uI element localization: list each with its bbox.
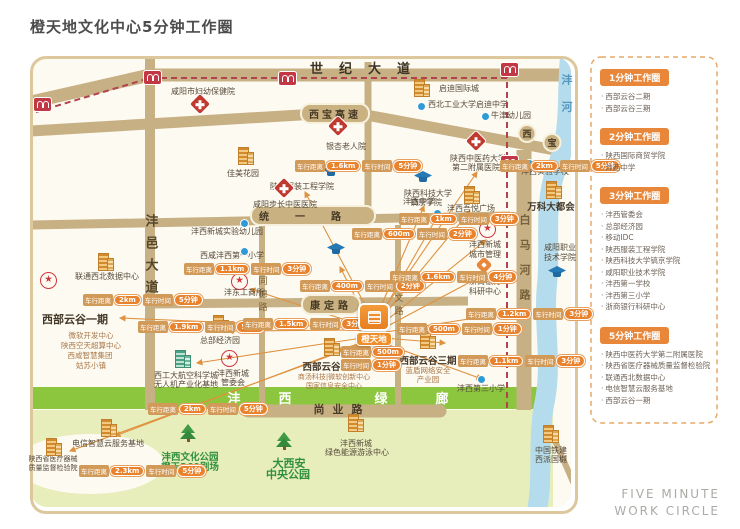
legend-panel: 1分钟工作圈西部云谷二期西部云谷三期2分钟工作圈陕西国际商贸学院沣西中学3分钟工…	[600, 66, 722, 417]
university-cap-icon	[548, 266, 566, 279]
map-label: 联通西北数据中心	[75, 271, 139, 282]
map-label: 沣邑大道	[141, 214, 160, 302]
building-icon	[346, 414, 363, 430]
map-label: 西派国樾	[535, 454, 567, 465]
badge-value: 4分钟	[488, 271, 517, 283]
distance-time-badge: 车行距离1.2km车行时间3分钟	[466, 308, 593, 320]
legend-section-title: 2分钟工作圈	[600, 128, 669, 145]
badge-row: 车行距离500m	[397, 323, 460, 335]
legend-section-title: 5分钟工作圈	[600, 327, 669, 344]
badge-value: 1.5km	[274, 319, 308, 329]
map-label: 西部云谷一期	[42, 311, 108, 327]
map-label: 国家信息安全中心	[306, 381, 362, 391]
government-star-icon: ★	[231, 273, 248, 290]
metro-station-icon	[278, 71, 297, 86]
badge-value: 2km	[114, 295, 141, 305]
badge-key: 车行距离	[295, 160, 325, 172]
badge-key: 车行时间	[525, 355, 555, 367]
badge-value: 3分钟	[282, 263, 311, 275]
badge-key: 车行距离	[83, 294, 113, 306]
distance-time-badge: 车行距离500m车行时间1分钟	[397, 323, 522, 335]
building-icon	[462, 186, 479, 202]
badge-row: 车行时间4分钟	[457, 271, 517, 283]
legend-item: 西部云谷二期	[601, 91, 722, 103]
legend-section: 3分钟工作圈沣西管委会总部经济园移动IDC陕西服装工程学院陕西科技大学镐京学院咸…	[600, 184, 722, 313]
map-label: 沣西新城实验幼儿园	[191, 226, 263, 237]
badge-key: 车行时间	[341, 359, 371, 371]
badge-row: 车行时间1分钟	[462, 323, 522, 335]
building-icon	[544, 181, 561, 197]
badge-row: 车行距离2km	[83, 294, 141, 306]
distance-time-badge: 车行距离1.6km车行时间5分钟	[295, 160, 422, 172]
legend-section: 2分钟工作圈陕西国际商贸学院沣西中学	[600, 125, 722, 173]
map-label: 电信智慧云服务基地	[72, 438, 144, 449]
badge-value: 1.6km	[421, 272, 455, 282]
map-label: 启迪国际城	[439, 83, 479, 94]
university-cap-icon	[327, 243, 345, 256]
badge-value: 3分钟	[490, 213, 519, 225]
badge-key: 车行距离	[79, 465, 109, 477]
government-star-icon: ★	[40, 272, 57, 289]
badge-key: 车行距离	[341, 346, 371, 358]
map-label: 第二附属医院	[452, 162, 500, 173]
school-dot-icon	[240, 247, 249, 256]
hospital-icon	[465, 130, 488, 153]
badge-row: 车行距离2.3km	[79, 465, 144, 477]
map-label: 牛津幼儿园	[491, 110, 531, 121]
distance-time-badge: 车行距离1.6km车行时间4分钟	[390, 271, 517, 283]
map-label: 康定路	[301, 294, 361, 315]
badge-key: 车行时间	[533, 308, 563, 320]
park-tree-icon	[276, 432, 292, 450]
badge-value: 500m	[428, 324, 460, 334]
badge-key: 车行时间	[146, 465, 176, 477]
building-icon	[236, 147, 253, 163]
map-label: 沣西第三小学	[457, 383, 505, 394]
badge-value: 600m	[383, 229, 415, 239]
map-label: 质量监督检验院	[29, 463, 78, 473]
badge-row: 车行距离1.6km	[295, 160, 360, 172]
legend-section: 5分钟工作圈陕西中医药大学第二附属医院陕西省医疗器械质量监督检验院联通西北数据中…	[600, 324, 722, 407]
badge-key: 车行时间	[417, 228, 447, 240]
badge-value: 1.6km	[326, 161, 360, 171]
distance-time-badge: 车行距离600m车行时间2分钟	[352, 228, 477, 240]
badge-value: 5分钟	[174, 294, 203, 306]
badge-row: 车行时间5分钟	[362, 160, 422, 172]
legend-section-title: 1分钟工作圈	[600, 69, 669, 86]
map-label: 中央公园	[266, 466, 310, 482]
badge-key: 车行距离	[243, 318, 273, 330]
legend-section-title: 3分钟工作圈	[600, 187, 669, 204]
legend-item: 陕西国际商贸学院	[601, 150, 722, 162]
legend-item: 沣西第一学校	[601, 278, 722, 290]
park-tree-icon	[180, 424, 196, 442]
legend-item-list: 陕西国际商贸学院沣西中学	[601, 150, 722, 173]
metro-station-icon	[143, 70, 162, 85]
map-label: 万科大都会	[527, 199, 575, 213]
badge-key: 车行时间	[459, 213, 489, 225]
badge-key: 车行距离	[300, 280, 330, 292]
legend-item: 联通西北数据中心	[601, 372, 722, 384]
building-icon	[541, 425, 558, 441]
badge-row: 车行时间3分钟	[251, 263, 311, 275]
tech-building-icon	[173, 350, 190, 366]
map-label: 世纪大道	[310, 58, 426, 77]
map-label: 管委会	[221, 377, 245, 388]
badge-key: 车行距离	[352, 228, 382, 240]
marker-label: 橙天地	[356, 332, 392, 346]
map-label: 技术学院	[544, 252, 576, 263]
badge-row: 车行时间3分钟	[525, 355, 585, 367]
badge-value: 2分钟	[448, 228, 477, 240]
map-label: 绿	[374, 388, 387, 407]
badge-row: 车行距离1km	[399, 213, 457, 225]
legend-item: 移动IDC	[601, 232, 722, 244]
building-icon	[412, 79, 429, 95]
map-label: 西咸沣西第一小学	[200, 250, 264, 261]
school-dot-icon	[477, 375, 486, 384]
badge-row: 车行时间3分钟	[533, 308, 593, 320]
distance-time-badge: 车行距离1.1km车行时间3分钟	[458, 355, 585, 367]
badge-key: 车行时间	[251, 263, 281, 275]
badge-value: 3分钟	[564, 308, 593, 320]
badge-row: 车行时间5分钟	[143, 294, 203, 306]
legend-item-list: 西部云谷二期西部云谷三期	[601, 91, 722, 114]
badge-value: 1分钟	[493, 323, 522, 335]
badge-row: 车行距离1.1km	[184, 263, 249, 275]
map-label: 总部经济园	[200, 335, 240, 346]
badge-row: 车行距离2km	[148, 403, 206, 415]
legend-item: 陕西科技大学镐京学院	[601, 255, 722, 267]
map-label: 白马河路	[516, 214, 532, 314]
badge-row: 车行时间5分钟	[146, 465, 206, 477]
badge-row: 车行时间1分钟	[341, 359, 401, 371]
badge-key: 车行距离	[390, 271, 420, 283]
school-dot-icon	[417, 102, 426, 111]
map-label: 银杏老人院	[326, 141, 366, 152]
badge-row: 车行时间2分钟	[417, 228, 477, 240]
distance-time-badge: 车行距离1.5km车行时间3分钟	[243, 318, 370, 330]
map-label: 姑苏小镇	[76, 360, 106, 371]
badge-row: 车行时间3分钟	[459, 213, 519, 225]
map-label: 西	[278, 388, 291, 407]
metro-station-icon	[33, 97, 52, 112]
map-label: 廊	[435, 388, 448, 407]
university-cap-icon	[414, 171, 432, 184]
map-label: 宝	[543, 133, 562, 152]
building-icon	[99, 419, 116, 435]
badge-key: 车行距离	[399, 213, 429, 225]
badge-row: 车行距离1.5km	[243, 318, 308, 330]
badge-key: 车行时间	[208, 403, 238, 415]
government-star-icon: ★	[221, 350, 238, 367]
badge-key: 车行时间	[457, 271, 487, 283]
badge-value: 5分钟	[393, 160, 422, 172]
legend-item: 陕西省医疗器械质量监督检验院	[601, 360, 722, 372]
footer-line-1: FIVE MINUTE	[600, 486, 720, 503]
badge-key: 车行距离	[458, 355, 488, 367]
badge-value: 1分钟	[372, 359, 401, 371]
badge-key: 车行距离	[500, 160, 530, 172]
map-label: 绿色能源游泳中心	[325, 447, 389, 458]
badge-value: 5分钟	[177, 465, 206, 477]
badge-key: 车行时间	[560, 160, 590, 172]
distance-time-badge: 车行距离2km车行时间5分钟	[83, 294, 203, 306]
badge-value: 500m	[372, 347, 404, 357]
distance-time-badge: 车行距离1.1km车行时间3分钟	[184, 263, 311, 275]
badge-row: 车行距离600m	[352, 228, 415, 240]
legend-item: 沣西管委会	[601, 209, 722, 221]
map-label: 科研中心	[469, 286, 501, 297]
badge-value: 2.3km	[110, 466, 144, 476]
badge-value: 400m	[331, 281, 363, 291]
distance-time-badge: 车行距离500m车行时间1分钟	[341, 346, 404, 371]
badge-row: 车行距离2km	[500, 160, 558, 172]
badge-row: 车行时间5分钟	[208, 403, 268, 415]
map-label: 西	[518, 124, 537, 143]
badge-value: 2km	[179, 404, 206, 414]
badge-key: 车行距离	[138, 321, 168, 333]
badge-value: 1km	[430, 214, 457, 224]
badge-row: 车行距离1.2km	[466, 308, 531, 320]
legend-item: 沣西第三小学	[601, 290, 722, 302]
legend-item: 沣西中学	[601, 162, 722, 174]
page: 橙天地文化中心5分钟工作圈	[0, 0, 740, 529]
badge-row: 车行距离500m	[341, 346, 404, 358]
badge-value: 2km	[531, 161, 558, 171]
badge-key: 车行时间	[362, 160, 392, 172]
legend-item: 电信智慧云服务基地	[601, 383, 722, 395]
legend-item: 咸阳职业技术学院	[601, 267, 722, 279]
legend-item: 西部云谷一期	[601, 395, 722, 407]
legend-item: 西部云谷三期	[601, 103, 722, 115]
distance-time-badge: 车行距离1km车行时间3分钟	[399, 213, 519, 225]
map-label: 咸阳步长中医医院	[253, 199, 317, 210]
badge-value: 5分钟	[239, 403, 268, 415]
badge-row: 车行距离1.9km	[138, 321, 203, 333]
map-label: 沣河	[558, 74, 574, 128]
school-dot-icon	[481, 112, 490, 121]
badge-key: 车行距离	[397, 323, 427, 335]
metro-station-icon	[500, 62, 519, 77]
legend-item: 总部经济园	[601, 221, 722, 233]
badge-value: 1.2km	[497, 309, 531, 319]
building-icon	[44, 438, 61, 454]
building-icon	[96, 253, 113, 269]
badge-key: 车行时间	[310, 318, 340, 330]
legend-item: 浙商银行科研中心	[601, 301, 722, 313]
distance-time-badge: 车行距离2km车行时间5分钟	[148, 403, 268, 415]
map-label: 佳美花园	[227, 168, 259, 179]
map-label: 西北工业大学启迪中学	[428, 99, 508, 110]
badge-key: 车行时间	[462, 323, 492, 335]
marker-building-icon	[358, 303, 390, 331]
footer-caption: FIVE MINUTE WORK CIRCLE	[600, 486, 720, 520]
map-label: 产业园	[417, 374, 440, 385]
legend-item: 陕西服装工程学院	[601, 244, 722, 256]
badge-key: 车行距离	[148, 403, 178, 415]
school-dot-icon	[240, 219, 249, 228]
main-marker-chengtiandi: 橙天地	[356, 303, 392, 346]
badge-value: 3分钟	[556, 355, 585, 367]
badge-key: 车行距离	[466, 308, 496, 320]
badge-key: 车行时间	[143, 294, 173, 306]
legend-section: 1分钟工作圈西部云谷二期西部云谷三期	[600, 66, 722, 114]
badge-value: 1.1km	[215, 264, 249, 274]
distance-time-badge: 车行距离2.3km车行时间5分钟	[79, 465, 206, 477]
badge-row: 车行距离1.1km	[458, 355, 523, 367]
badge-row: 车行距离400m	[300, 280, 363, 292]
legend-item-list: 沣西管委会总部经济园移动IDC陕西服装工程学院陕西科技大学镐京学院咸阳职业技术学…	[601, 209, 722, 313]
badge-key: 车行距离	[184, 263, 214, 275]
badge-value: 1.1km	[489, 356, 523, 366]
map-label: 镐京学院	[410, 197, 442, 208]
legend-item: 陕西中医药大学第二附属医院	[601, 349, 722, 361]
building-icon	[322, 338, 339, 354]
footer-line-2: WORK CIRCLE	[600, 503, 720, 520]
badge-row: 车行距离1.6km	[390, 271, 455, 283]
badge-key: 车行时间	[205, 321, 235, 333]
badge-value: 1.9km	[169, 322, 203, 332]
legend-item-list: 陕西中医药大学第二附属医院陕西省医疗器械质量监督检验院联通西北数据中心电信智慧云…	[601, 349, 722, 407]
map-label: 无人机产业化基地	[154, 379, 218, 390]
